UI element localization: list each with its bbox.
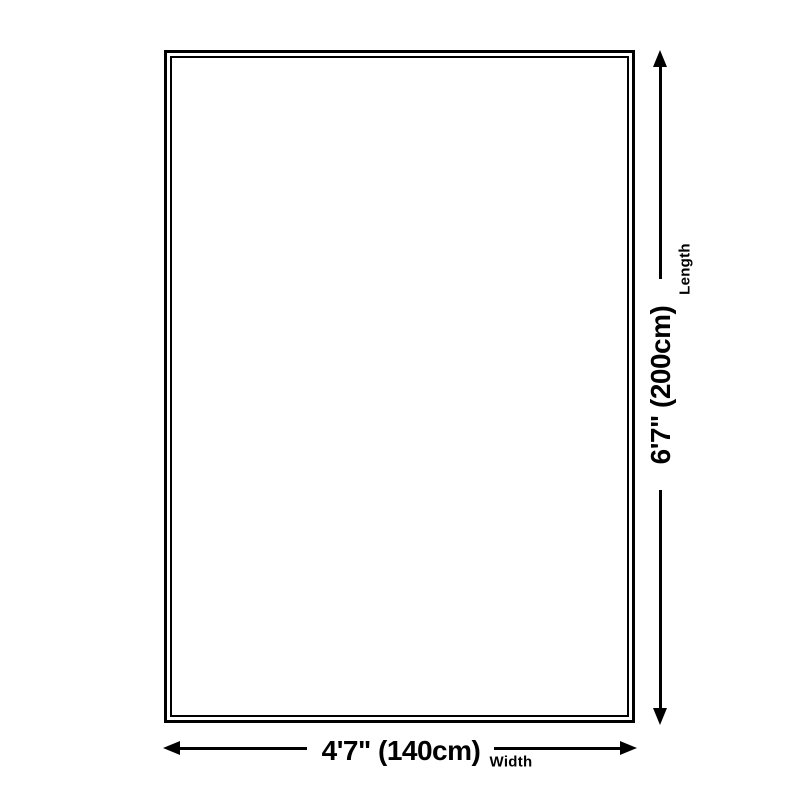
arrow-left-icon bbox=[163, 741, 180, 755]
length-label: Length bbox=[677, 243, 694, 295]
arrow-down-icon bbox=[653, 708, 667, 725]
width-value: 4'7" (140cm) bbox=[322, 735, 481, 767]
rug-inner-outline bbox=[170, 56, 629, 717]
width-dimension-line-right bbox=[494, 747, 621, 750]
rug-outline bbox=[164, 50, 635, 723]
width-dimension-line-left bbox=[180, 747, 307, 750]
length-dimension-line-bottom bbox=[659, 490, 662, 711]
length-dimension-line-top bbox=[659, 64, 662, 279]
length-value: 6'7" (200cm) bbox=[645, 306, 677, 465]
size-diagram: 6'7" (200cm) Length 4'7" (140cm) Width bbox=[0, 0, 800, 800]
width-label: Width bbox=[489, 754, 532, 771]
arrow-right-icon bbox=[620, 741, 637, 755]
